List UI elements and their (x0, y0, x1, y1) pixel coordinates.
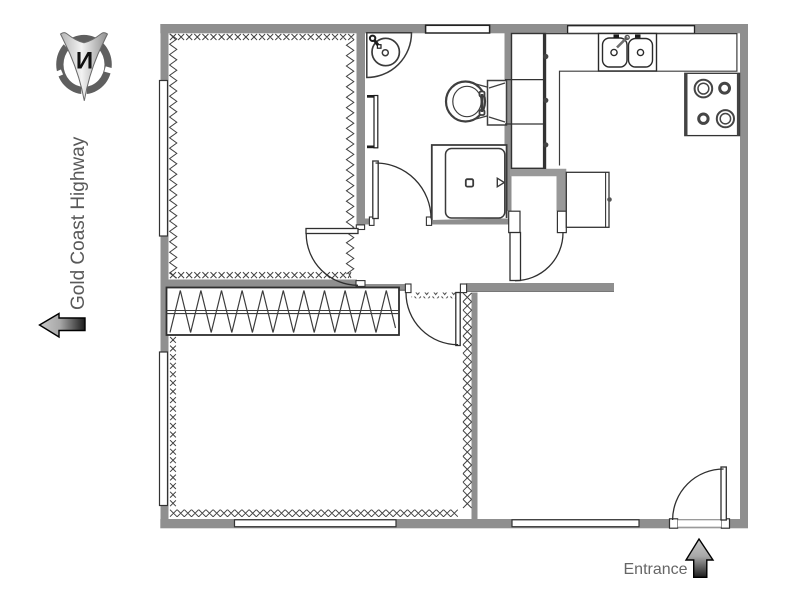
svg-text:Gold Coast Highway: Gold Coast Highway (68, 136, 89, 310)
svg-text:И: И (76, 48, 93, 75)
svg-text:Entrance: Entrance (624, 561, 688, 578)
